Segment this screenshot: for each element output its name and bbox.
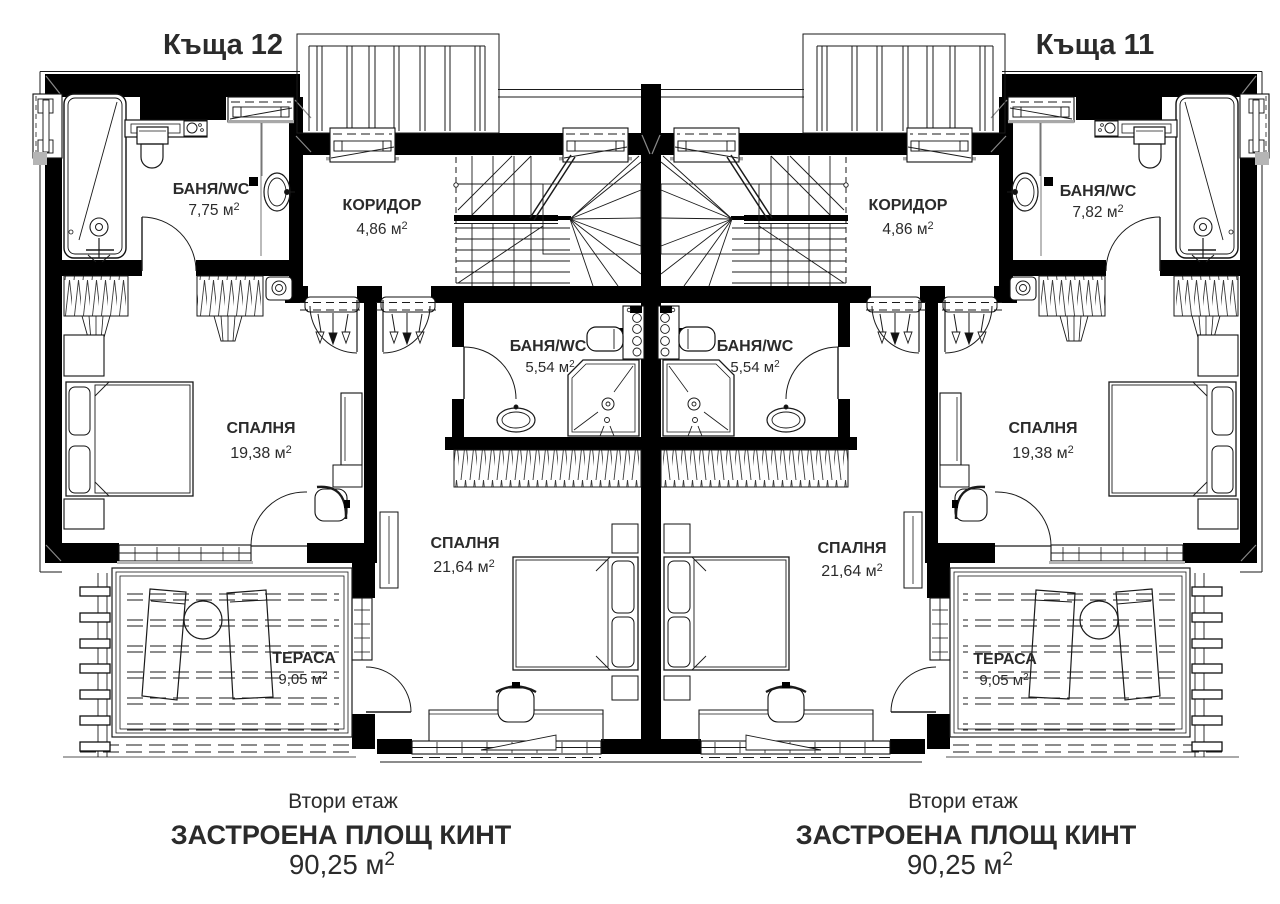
svg-text:21,64 м2: 21,64 м2 [821, 562, 883, 580]
svg-text:БАНЯ/WC: БАНЯ/WC [173, 181, 250, 198]
svg-text:21,64 м2: 21,64 м2 [433, 558, 495, 576]
svg-text:СПАЛНЯ: СПАЛНЯ [1008, 420, 1077, 437]
svg-text:КОРИДОР: КОРИДОР [869, 197, 948, 214]
svg-text:БАНЯ/WC: БАНЯ/WC [717, 338, 794, 355]
svg-text:ЗАСТРОЕНА ПЛОЩ КИНТ: ЗАСТРОЕНА ПЛОЩ КИНТ [796, 820, 1137, 850]
svg-text:БАНЯ/WC: БАНЯ/WC [1060, 183, 1137, 200]
svg-text:Втори етаж: Втори етаж [908, 790, 1018, 813]
svg-text:5,54 м2: 5,54 м2 [525, 359, 575, 376]
svg-text:19,38 м2: 19,38 м2 [230, 444, 292, 462]
svg-text:Втори етаж: Втори етаж [288, 790, 398, 813]
svg-text:БАНЯ/WC: БАНЯ/WC [510, 338, 587, 355]
svg-text:ЗАСТРОЕНА ПЛОЩ КИНТ: ЗАСТРОЕНА ПЛОЩ КИНТ [171, 820, 512, 850]
svg-text:Къща 12: Къща 12 [163, 29, 283, 61]
svg-text:90,25 м2: 90,25 м2 [907, 849, 1013, 880]
svg-text:СПАЛНЯ: СПАЛНЯ [817, 540, 886, 557]
svg-text:ТЕРАСА: ТЕРАСА [973, 651, 1037, 668]
svg-text:КОРИДОР: КОРИДОР [343, 197, 422, 214]
svg-text:СПАЛНЯ: СПАЛНЯ [226, 420, 295, 437]
svg-text:4,86 м2: 4,86 м2 [356, 220, 407, 238]
svg-text:ТЕРАСА: ТЕРАСА [272, 650, 336, 667]
svg-text:Къща 11: Къща 11 [1036, 29, 1155, 61]
svg-text:5,54 м2: 5,54 м2 [730, 359, 780, 376]
svg-text:7,75 м2: 7,75 м2 [188, 201, 239, 219]
svg-text:19,38 м2: 19,38 м2 [1012, 444, 1074, 462]
svg-text:СПАЛНЯ: СПАЛНЯ [430, 535, 499, 552]
svg-text:9,05 м2: 9,05 м2 [979, 672, 1029, 689]
svg-text:7,82 м2: 7,82 м2 [1072, 203, 1123, 221]
svg-text:90,25 м2: 90,25 м2 [289, 849, 395, 880]
svg-text:4,86 м2: 4,86 м2 [882, 220, 933, 238]
svg-text:9,05 м2: 9,05 м2 [278, 671, 328, 688]
